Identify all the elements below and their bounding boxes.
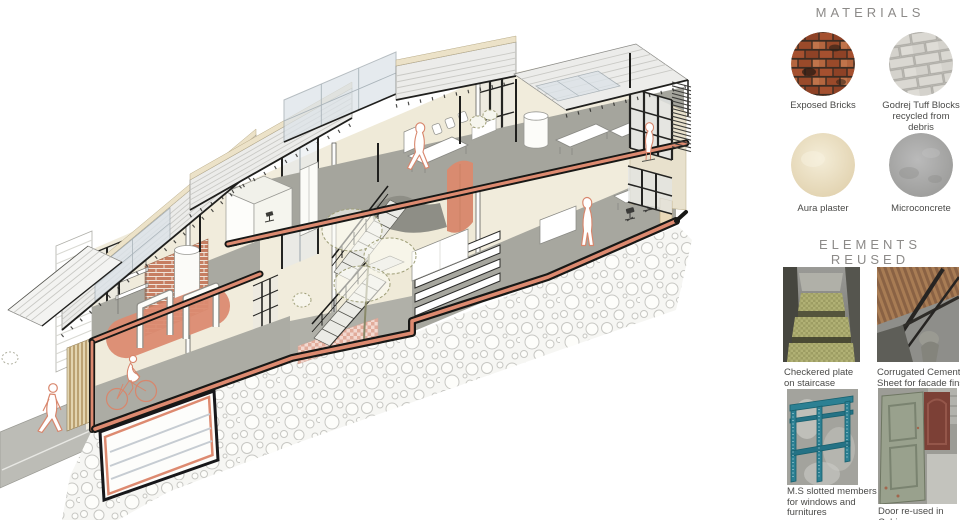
element-label-checkered-plate: Checkered plate on staircase bbox=[784, 367, 872, 389]
material-label-tuff-blocks: Godrej Tuff Blocks recycled from debris bbox=[880, 100, 960, 133]
photo-corrugated-sheet bbox=[877, 267, 959, 362]
photo-reused-door bbox=[878, 388, 957, 504]
material-swatch-exposed-bricks bbox=[791, 32, 855, 96]
material-swatch-tuff-blocks bbox=[889, 32, 953, 96]
materials-title: MATERIALS bbox=[782, 5, 958, 20]
slotted-members-image bbox=[787, 389, 858, 485]
checkered-plate-image bbox=[783, 267, 860, 362]
material-swatch-aura-plaster bbox=[791, 133, 855, 197]
exposed-bricks-image bbox=[791, 32, 855, 96]
presentation-board: MATERIALS bbox=[0, 0, 960, 520]
material-swatch-microconcrete bbox=[889, 133, 953, 197]
material-label-microconcrete: Microconcrete bbox=[880, 203, 960, 214]
element-label-slotted-members: M.S slotted members for windows and furn… bbox=[787, 487, 877, 519]
axonometric-cutaway-drawing bbox=[0, 0, 780, 520]
photo-slotted-members bbox=[787, 389, 858, 485]
material-label-aura-plaster: Aura plaster bbox=[782, 203, 864, 214]
corrugated-sheet-image bbox=[877, 267, 959, 362]
elements-reused-title: ELEMENTS REUSED bbox=[782, 237, 958, 267]
microconcrete-image bbox=[889, 133, 953, 197]
material-label-exposed-bricks: Exposed Bricks bbox=[782, 100, 864, 111]
aura-plaster-image bbox=[791, 133, 855, 197]
element-label-corrugated-sheet: Corrugated Cement Sheet for facade fins bbox=[877, 367, 960, 389]
reused-door-image bbox=[878, 388, 957, 504]
element-label-reused-door: Door re-used in Cabin bbox=[878, 506, 960, 520]
tuff-blocks-image bbox=[889, 32, 953, 96]
photo-checkered-plate bbox=[783, 267, 860, 362]
